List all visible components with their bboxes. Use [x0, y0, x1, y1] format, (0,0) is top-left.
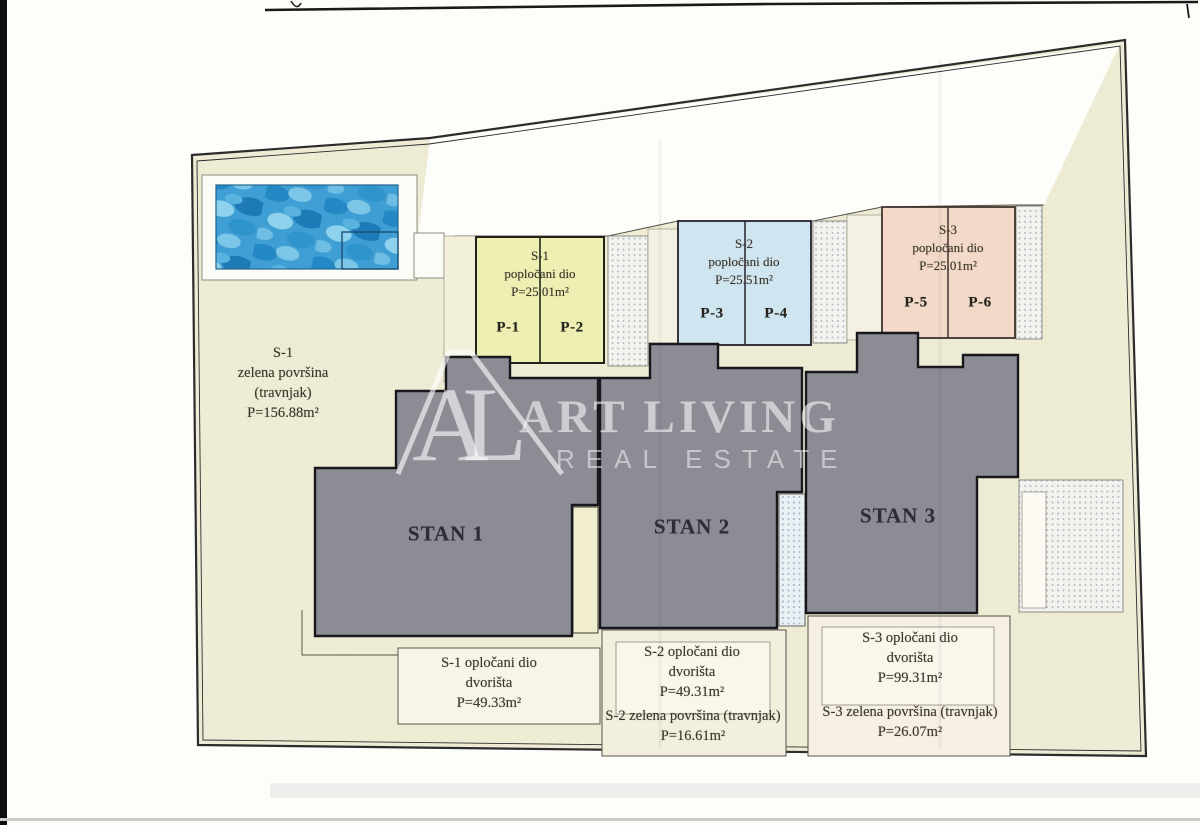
swimming-pool	[216, 185, 398, 269]
parking-s2-label: S-2 popločani dio P=25.51m²	[708, 235, 779, 289]
parking-stall-p6: P-6	[968, 293, 991, 314]
strip-between-parking1-2b	[648, 229, 678, 343]
building-stan2	[600, 344, 802, 628]
bottom-scan-line	[0, 818, 1200, 821]
parking-stall-p1: P-1	[496, 318, 519, 339]
scan-smudge	[270, 783, 1200, 798]
site-plan: S-1 zelena površina (travnjak) P=156.88m…	[0, 0, 1200, 825]
side-yard-path	[1022, 492, 1046, 608]
strip-between-parking2-3b	[847, 215, 882, 340]
unit-label-stan3: STAN 3	[860, 502, 936, 531]
strip-between-parking1-2a	[608, 236, 648, 366]
top-frame-line	[265, 2, 1198, 10]
green-area-s3-label: S-3 zelena površina (travnjak) P=26.07m²	[822, 702, 997, 742]
lightwell-between-stan1-2	[573, 507, 598, 633]
parking-stall-p3: P-3	[700, 304, 723, 325]
left-edge-bar	[0, 0, 7, 825]
unit-label-stan2: STAN 2	[654, 513, 730, 542]
yard-s3-label: S-3 opločani dio dvorišta P=99.31m²	[862, 628, 958, 688]
parking-stall-p2: P-2	[560, 318, 583, 339]
green-area-s1-label: S-1 zelena površina (travnjak) P=156.88m…	[238, 343, 329, 423]
parking-s3-label: S-3 popločani dio P=25.01m²	[912, 221, 983, 275]
lightwell-between-stan2-3	[779, 494, 805, 626]
site-plan-drawing	[0, 0, 1200, 825]
green-area-s2-label: S-2 zelena površina (travnjak) P=16.61m²	[605, 706, 780, 746]
corner-tick	[1187, 4, 1189, 18]
parking-stall-p5: P-5	[904, 293, 927, 314]
yard-s1-label: S-1 opločani dio dvorišta P=49.33m²	[441, 653, 537, 713]
pen-squiggle	[291, 1, 301, 7]
pool-deck-extension	[414, 233, 444, 278]
parking-stall-p4: P-4	[764, 304, 787, 325]
parking-s1-label: S-1 popločani dio P=25.01m²	[504, 247, 575, 301]
unit-label-stan1: STAN 1	[408, 520, 484, 549]
strip-between-parking2-3a	[813, 221, 847, 343]
yard-s2-label: S-2 opločani dio dvorišta P=49.31m²	[644, 642, 740, 702]
strip-right-of-parking3	[1016, 206, 1042, 339]
